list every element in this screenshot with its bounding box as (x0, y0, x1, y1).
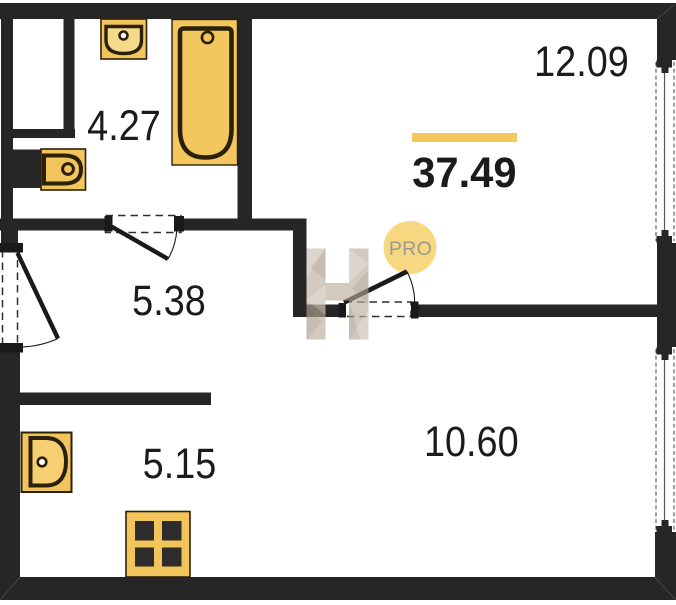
svg-text:4.27: 4.27 (87, 101, 161, 150)
svg-text:5.15: 5.15 (143, 439, 217, 488)
svg-text:10.60: 10.60 (424, 417, 519, 466)
svg-text:5.38: 5.38 (132, 276, 206, 325)
svg-text:37.49: 37.49 (412, 148, 516, 196)
svg-text:PRO: PRO (389, 238, 432, 260)
svg-text:12.09: 12.09 (534, 37, 629, 86)
